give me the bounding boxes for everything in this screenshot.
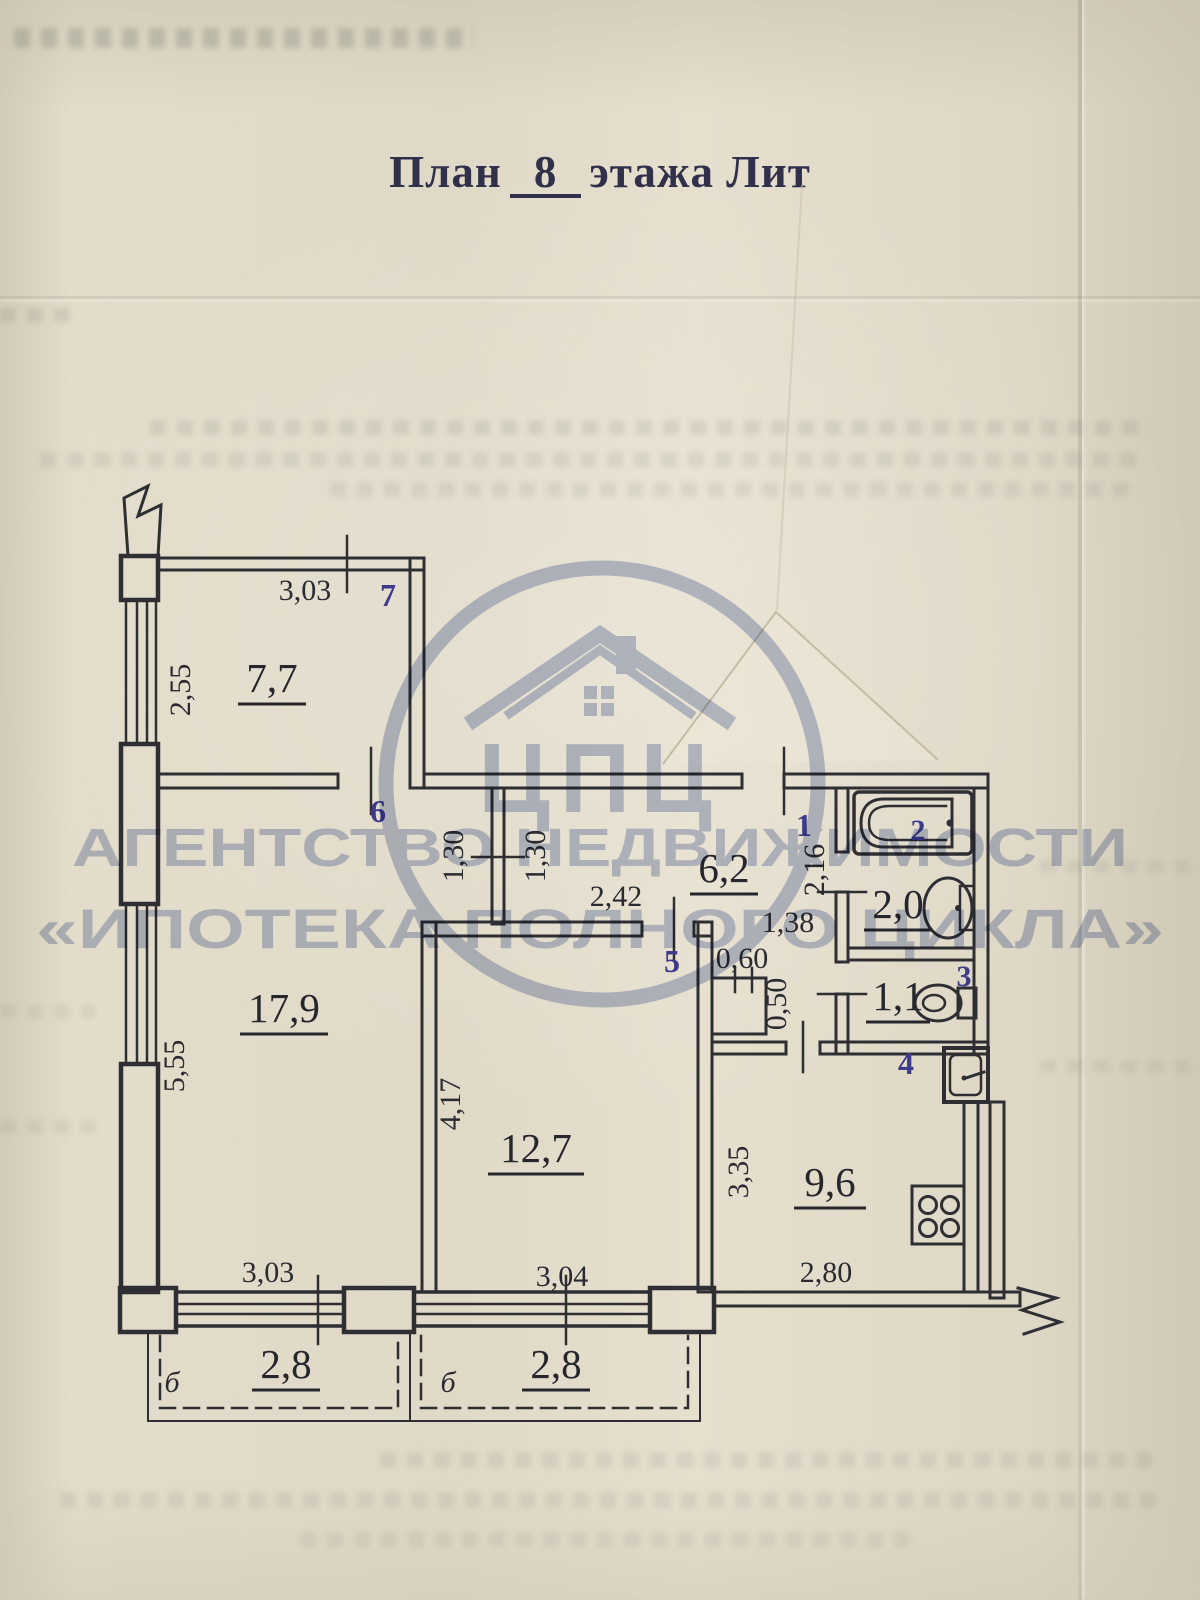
balconies [148, 1334, 700, 1421]
dim-top-303: 3,03 [279, 574, 332, 607]
dim-bottom-303: 3,03 [242, 1256, 295, 1289]
watermark-monogram: ЦПЦ [478, 723, 722, 833]
room-number-7: 7 [380, 577, 396, 613]
floorplan-drawing: 7,7 17,9 12,7 6,2 2,0 1,1 9,6 2,8 2,8 3,… [0, 0, 1200, 1600]
dim-duct-050: 0,50 [760, 978, 793, 1031]
stove-icon [912, 1186, 964, 1244]
wall-break-bottom-right [1018, 1288, 1060, 1334]
house-logo-icon [468, 634, 732, 724]
balcony-letter-2: б [440, 1366, 456, 1399]
room-number-3: 3 [957, 960, 972, 993]
area-room12: 12,7 [500, 1125, 572, 1171]
kitchen-walls [712, 1042, 1004, 1298]
area-toilet: 1,1 [872, 973, 923, 1019]
area-kitchen: 9,6 [804, 1159, 855, 1205]
agency-watermark: ЦПЦ АГЕНТСТВО НЕДВИЖИМОСТИ «ИПОТЕКА ПОЛН… [36, 568, 1164, 1000]
window-bottom-room12 [414, 1292, 650, 1326]
dim-left-555: 5,55 [158, 1040, 191, 1093]
dim-left-255: 2,55 [164, 664, 197, 717]
paper-fold-triangle [663, 185, 938, 764]
scanned-floorplan-page: План8этажа Лит [0, 0, 1200, 1600]
room-number-4: 4 [898, 1045, 914, 1081]
dim-bottom-304: 3,04 [536, 1260, 589, 1293]
watermark-line1: АГЕНТСТВО НЕДВИЖИМОСТИ [72, 818, 1128, 878]
window-room7 [126, 600, 156, 744]
watermark-line2: «ИПОТЕКА ПОЛНОГО ЦИКЛА» [36, 897, 1164, 960]
area-balcony2: 2,8 [530, 1341, 581, 1387]
dim-kitchen-335: 3,35 [722, 1146, 755, 1199]
balcony-letter-1: б [164, 1366, 180, 1399]
duct-box [712, 978, 766, 1034]
dim-room12-417: 4,17 [434, 1078, 467, 1131]
area-balcony1: 2,8 [260, 1341, 311, 1387]
area-room7: 7,7 [246, 655, 297, 701]
wall-break-top [124, 486, 161, 556]
area-room17: 17,9 [248, 985, 320, 1031]
dim-kitchen-280: 2,80 [800, 1256, 853, 1289]
kitchen-sink-icon [944, 1048, 988, 1102]
bottom-wall [120, 1288, 1060, 1334]
left-outer-wall [121, 486, 161, 1292]
